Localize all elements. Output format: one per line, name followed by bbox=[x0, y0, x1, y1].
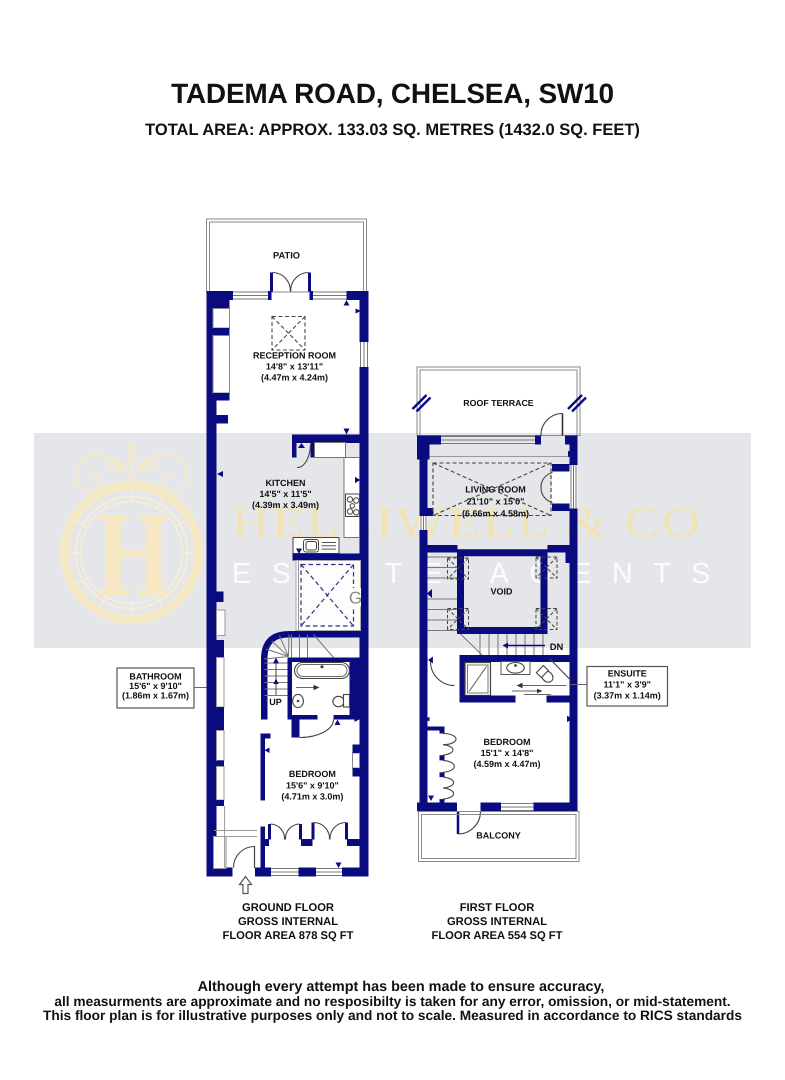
svg-text:(4.39m x 3.49m): (4.39m x 3.49m) bbox=[252, 500, 319, 510]
svg-text:BALCONY: BALCONY bbox=[476, 831, 521, 841]
svg-text:14'8" x 13'11": 14'8" x 13'11" bbox=[266, 362, 323, 372]
svg-text:15'1" x 14'8": 15'1" x 14'8" bbox=[481, 748, 534, 758]
svg-text:UP: UP bbox=[269, 697, 282, 707]
svg-text:DN: DN bbox=[550, 641, 564, 652]
svg-text:ROOF TERRACE: ROOF TERRACE bbox=[463, 398, 534, 408]
svg-text:11'1" x 3'9": 11'1" x 3'9" bbox=[604, 680, 651, 690]
svg-text:15'6" x 9'10": 15'6" x 9'10" bbox=[286, 781, 339, 791]
svg-text:KITCHEN: KITCHEN bbox=[266, 478, 306, 488]
svg-text:RECEPTION ROOM: RECEPTION ROOM bbox=[253, 351, 336, 361]
svg-text:BATHROOM: BATHROOM bbox=[129, 672, 181, 682]
svg-text:(4.47m x 4.24m): (4.47m x 4.24m) bbox=[261, 373, 328, 383]
svg-text:BEDROOM: BEDROOM bbox=[289, 769, 336, 779]
svg-text:ENSUITE: ENSUITE bbox=[608, 669, 647, 679]
svg-text:21'10" x 15'0": 21'10" x 15'0" bbox=[467, 497, 525, 507]
svg-text:G: G bbox=[349, 589, 362, 608]
svg-text:(6.66m x 4.58m): (6.66m x 4.58m) bbox=[462, 509, 529, 519]
svg-text:(3.37m x 1.14m): (3.37m x 1.14m) bbox=[594, 691, 661, 701]
svg-text:LIVING ROOM: LIVING ROOM bbox=[465, 485, 526, 495]
svg-text:PATIO: PATIO bbox=[273, 251, 300, 261]
svg-text:(4.59m x 4.47m): (4.59m x 4.47m) bbox=[473, 759, 540, 769]
svg-text:15'6" x 9'10": 15'6" x 9'10" bbox=[129, 681, 182, 691]
svg-text:(1.86m x 1.67m): (1.86m x 1.67m) bbox=[122, 691, 189, 701]
svg-text:VOID: VOID bbox=[490, 587, 513, 597]
svg-text:BEDROOM: BEDROOM bbox=[484, 737, 531, 747]
svg-text:14'5" x 11'5": 14'5" x 11'5" bbox=[259, 489, 311, 499]
svg-text:(4.71m x 3.0m): (4.71m x 3.0m) bbox=[281, 792, 343, 802]
